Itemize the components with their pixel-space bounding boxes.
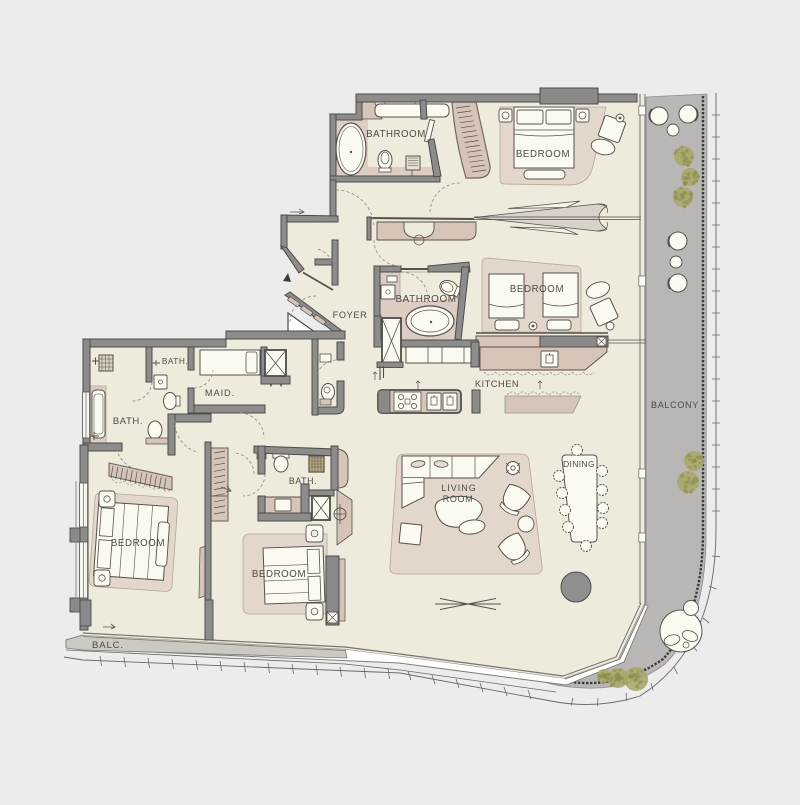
svg-text:BATHROOM: BATHROOM: [395, 294, 456, 305]
svg-text:LIVING: LIVING: [441, 483, 477, 493]
svg-text:BALC.: BALC.: [92, 640, 124, 651]
svg-text:BATH.: BATH.: [289, 476, 317, 486]
svg-text:BATH.: BATH.: [113, 416, 143, 427]
svg-text:DINING: DINING: [563, 459, 595, 469]
svg-text:BEDROOM: BEDROOM: [516, 149, 570, 160]
svg-text:FOYER: FOYER: [333, 310, 368, 320]
svg-text:KITCHEN: KITCHEN: [475, 379, 519, 389]
svg-text:MAID.: MAID.: [205, 388, 235, 398]
svg-text:BATH.: BATH.: [162, 356, 188, 366]
svg-text:BATHROOM: BATHROOM: [366, 129, 426, 140]
svg-text:BEDROOM: BEDROOM: [252, 569, 306, 580]
svg-text:BEDROOM: BEDROOM: [111, 538, 165, 549]
svg-text:ROOM: ROOM: [443, 494, 473, 504]
svg-text:BEDROOM: BEDROOM: [510, 284, 564, 295]
svg-text:BALCONY: BALCONY: [651, 400, 699, 410]
